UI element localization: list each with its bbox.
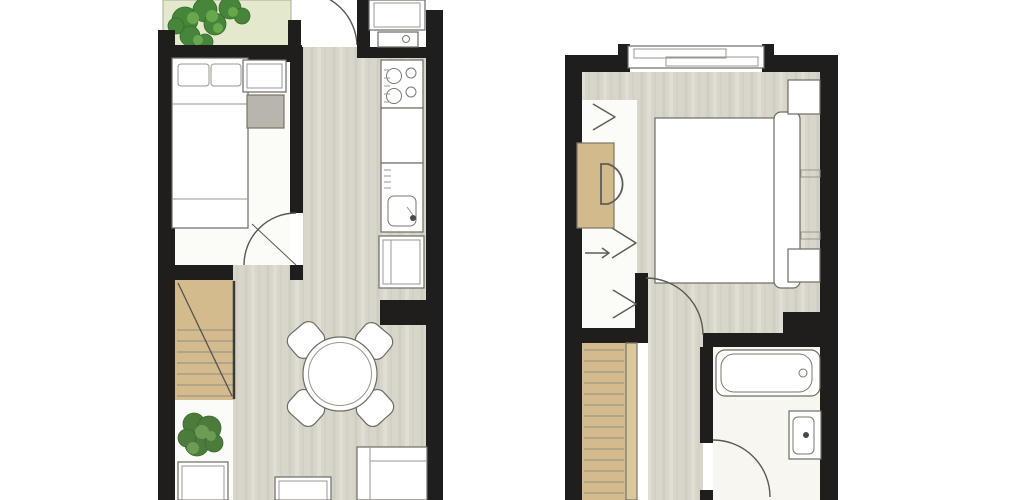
nightstand-top <box>788 80 820 114</box>
desk <box>577 143 614 228</box>
upper-staircase <box>582 343 637 500</box>
base-cabinet <box>379 236 424 288</box>
double-bed <box>655 118 777 283</box>
stove <box>381 60 423 108</box>
floor-plan-canvas <box>0 0 1024 500</box>
tall-kitchen-units <box>369 0 425 47</box>
bedroom-window <box>628 46 764 68</box>
kitchen-counter-run <box>379 60 424 288</box>
toilet <box>789 411 821 459</box>
single-bed <box>172 58 248 228</box>
round-dining-table <box>303 337 377 411</box>
upper-floor-plan <box>565 44 838 500</box>
bedroom-cabinet <box>243 60 286 92</box>
ground-floor-plan <box>158 0 443 500</box>
kitchen-sink <box>381 163 423 232</box>
side-table <box>247 95 284 128</box>
floor-plan-image <box>0 0 1024 500</box>
sofa <box>357 447 427 500</box>
bathtub <box>716 350 820 396</box>
nightstand-bottom <box>788 249 820 282</box>
kitchen-counter <box>381 108 423 163</box>
upper-stair-stringer <box>626 343 637 500</box>
sideboard <box>178 462 228 500</box>
entrance-door-arc <box>302 0 357 45</box>
coffee-table <box>275 477 331 500</box>
ground-staircase <box>175 280 235 400</box>
